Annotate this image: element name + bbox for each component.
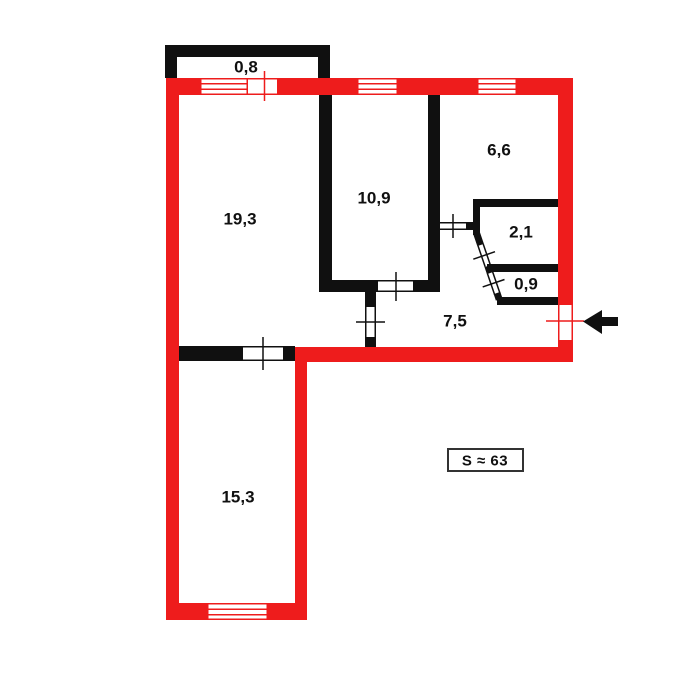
wall-bathroom-toilet [487, 264, 558, 272]
entrance-arrow-icon [583, 310, 618, 334]
room-label-toilet: 0,9 [514, 275, 538, 294]
window-second-room-icon [208, 604, 268, 620]
balcony-wall-west [165, 45, 177, 78]
room-label-bedroom: 10,9 [357, 189, 390, 208]
wall-kitchen-door-jamb [466, 222, 474, 230]
entrance-opening [558, 305, 573, 340]
wall-bathroom-north [473, 199, 558, 207]
floor-plan-drawing: 0,8 19,3 10,9 6,6 2,1 0,9 7,5 15,3 S ≈ 6… [0, 0, 699, 699]
window-living-room-icon [201, 79, 248, 95]
room-label-kitchen: 6,6 [487, 141, 511, 160]
wall-toilet-south [497, 297, 558, 305]
window-bedroom-icon [358, 79, 398, 95]
wall-east-lower [558, 340, 573, 362]
room-label-second-room: 15,3 [221, 488, 254, 507]
wall-east-upper [558, 78, 573, 305]
room-label-bathroom: 2,1 [509, 223, 533, 242]
wall-living-secondroom-right [283, 346, 295, 361]
balcony-wall-east [318, 45, 330, 78]
wall-bedroom-south-right [413, 280, 440, 292]
wall-living-hall-stub-bottom [365, 337, 376, 347]
floor-plan: 0,8 19,3 10,9 6,6 2,1 0,9 7,5 15,3 S ≈ 6… [0, 0, 699, 699]
kitchen-door-icon [440, 214, 466, 238]
living-room-door-icon [356, 307, 385, 337]
window-kitchen-icon [478, 79, 517, 95]
wall-bedroom-south-left [319, 280, 378, 292]
wall-second-room-east [295, 347, 307, 620]
wall-living-bedroom [319, 95, 332, 280]
total-area-label: S ≈ 63 [462, 453, 508, 470]
room-label-balcony: 0,8 [234, 58, 258, 77]
bedroom-door-icon [378, 272, 413, 301]
room-label-hallway: 7,5 [443, 312, 467, 331]
room-label-living-room: 19,3 [223, 210, 256, 229]
wall-bathroom-west [473, 199, 480, 235]
balcony-door-opening [248, 78, 277, 95]
wall-living-secondroom-left [179, 346, 243, 361]
wall-hall-south [295, 347, 573, 362]
exterior-detail-lines [200, 71, 584, 615]
balcony-wall-north [165, 45, 330, 57]
second-room-door-icon [243, 337, 283, 370]
wall-west [166, 78, 179, 620]
wall-living-hall-stub-top [365, 292, 376, 307]
wall-bedroom-east [428, 95, 440, 280]
